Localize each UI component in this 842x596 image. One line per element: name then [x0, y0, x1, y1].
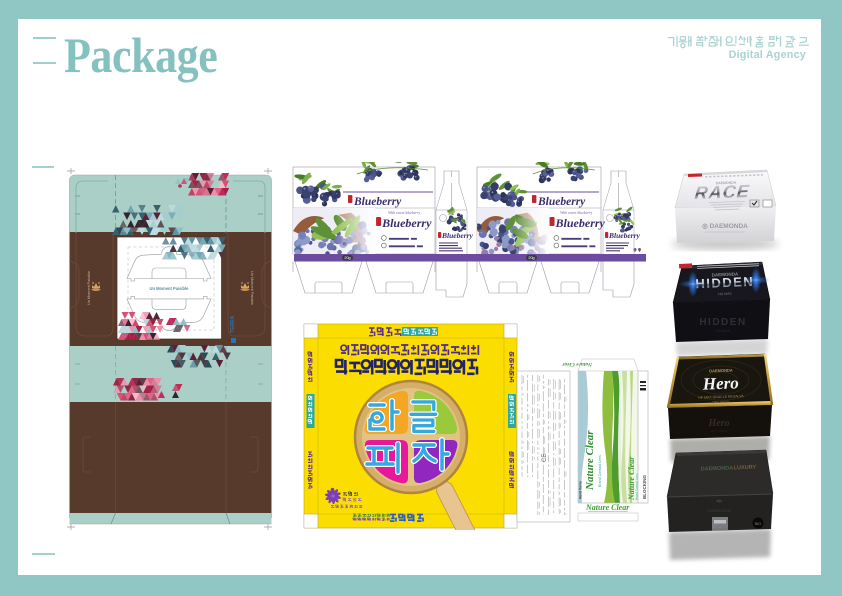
svg-text:LUXURY: LUXURY — [734, 465, 757, 472]
svg-text:Blueberry: Blueberry — [441, 231, 474, 240]
svg-text:Blueberry: Blueberry — [608, 231, 641, 240]
svg-text:Blueberry: Blueberry — [381, 216, 432, 230]
svg-text:Hand Korea: Hand Korea — [579, 481, 583, 499]
svg-text:With sweet blueberry: With sweet blueberry — [388, 211, 420, 215]
svg-text:Un Moment Paisible: Un Moment Paisible — [150, 286, 190, 291]
svg-text:RACE: RACE — [694, 181, 751, 203]
svg-text:DAEMONDA: DAEMONDA — [709, 368, 733, 374]
svg-text:CE: CE — [542, 454, 548, 462]
svg-text:HIDDEN: HIDDEN — [695, 274, 754, 292]
svg-text:DAEMONDA: DAEMONDA — [707, 508, 730, 513]
svg-text:NO MAX: NO MAX — [718, 292, 733, 297]
svg-text:DRY WASH: DRY WASH — [712, 400, 730, 405]
svg-text:DAEMONDA: DAEMONDA — [701, 465, 734, 472]
svg-text:HIDDEN: HIDDEN — [699, 317, 746, 328]
svg-text:Blueberry: Blueberry — [353, 196, 402, 208]
svg-text:Blueberry: Blueberry — [537, 196, 586, 208]
svg-text:Nature Clear: Nature Clear — [561, 361, 593, 367]
svg-text:DRY WASH: DRY WASH — [711, 429, 727, 433]
svg-text:Un Moment Paisible: Un Moment Paisible — [87, 271, 91, 305]
svg-text:Nature Clear: Nature Clear — [585, 503, 630, 512]
svg-text:Blueberry: Blueberry — [555, 216, 606, 230]
svg-text:TERRA: TERRA — [230, 315, 236, 333]
svg-text:With sweet blueberry: With sweet blueberry — [560, 211, 592, 215]
svg-text:Un Moment Paisible: Un Moment Paisible — [250, 271, 254, 305]
svg-text:◎ DAEMONDA: ◎ DAEMONDA — [702, 223, 748, 230]
svg-text:Hero: Hero — [702, 373, 740, 393]
svg-text:20g: 20g — [344, 256, 350, 260]
svg-text:20g: 20g — [528, 256, 534, 260]
svg-text:Nature Clear: Nature Clear — [584, 430, 596, 491]
svg-text:NO MAX: NO MAX — [716, 329, 730, 333]
svg-text:Hero: Hero — [707, 418, 729, 429]
svg-text:BLOCKING: BLOCKING — [642, 475, 647, 499]
svg-text:BIO: BIO — [755, 522, 761, 526]
svg-text:Brand Contact Lens: Brand Contact Lens — [598, 455, 602, 487]
